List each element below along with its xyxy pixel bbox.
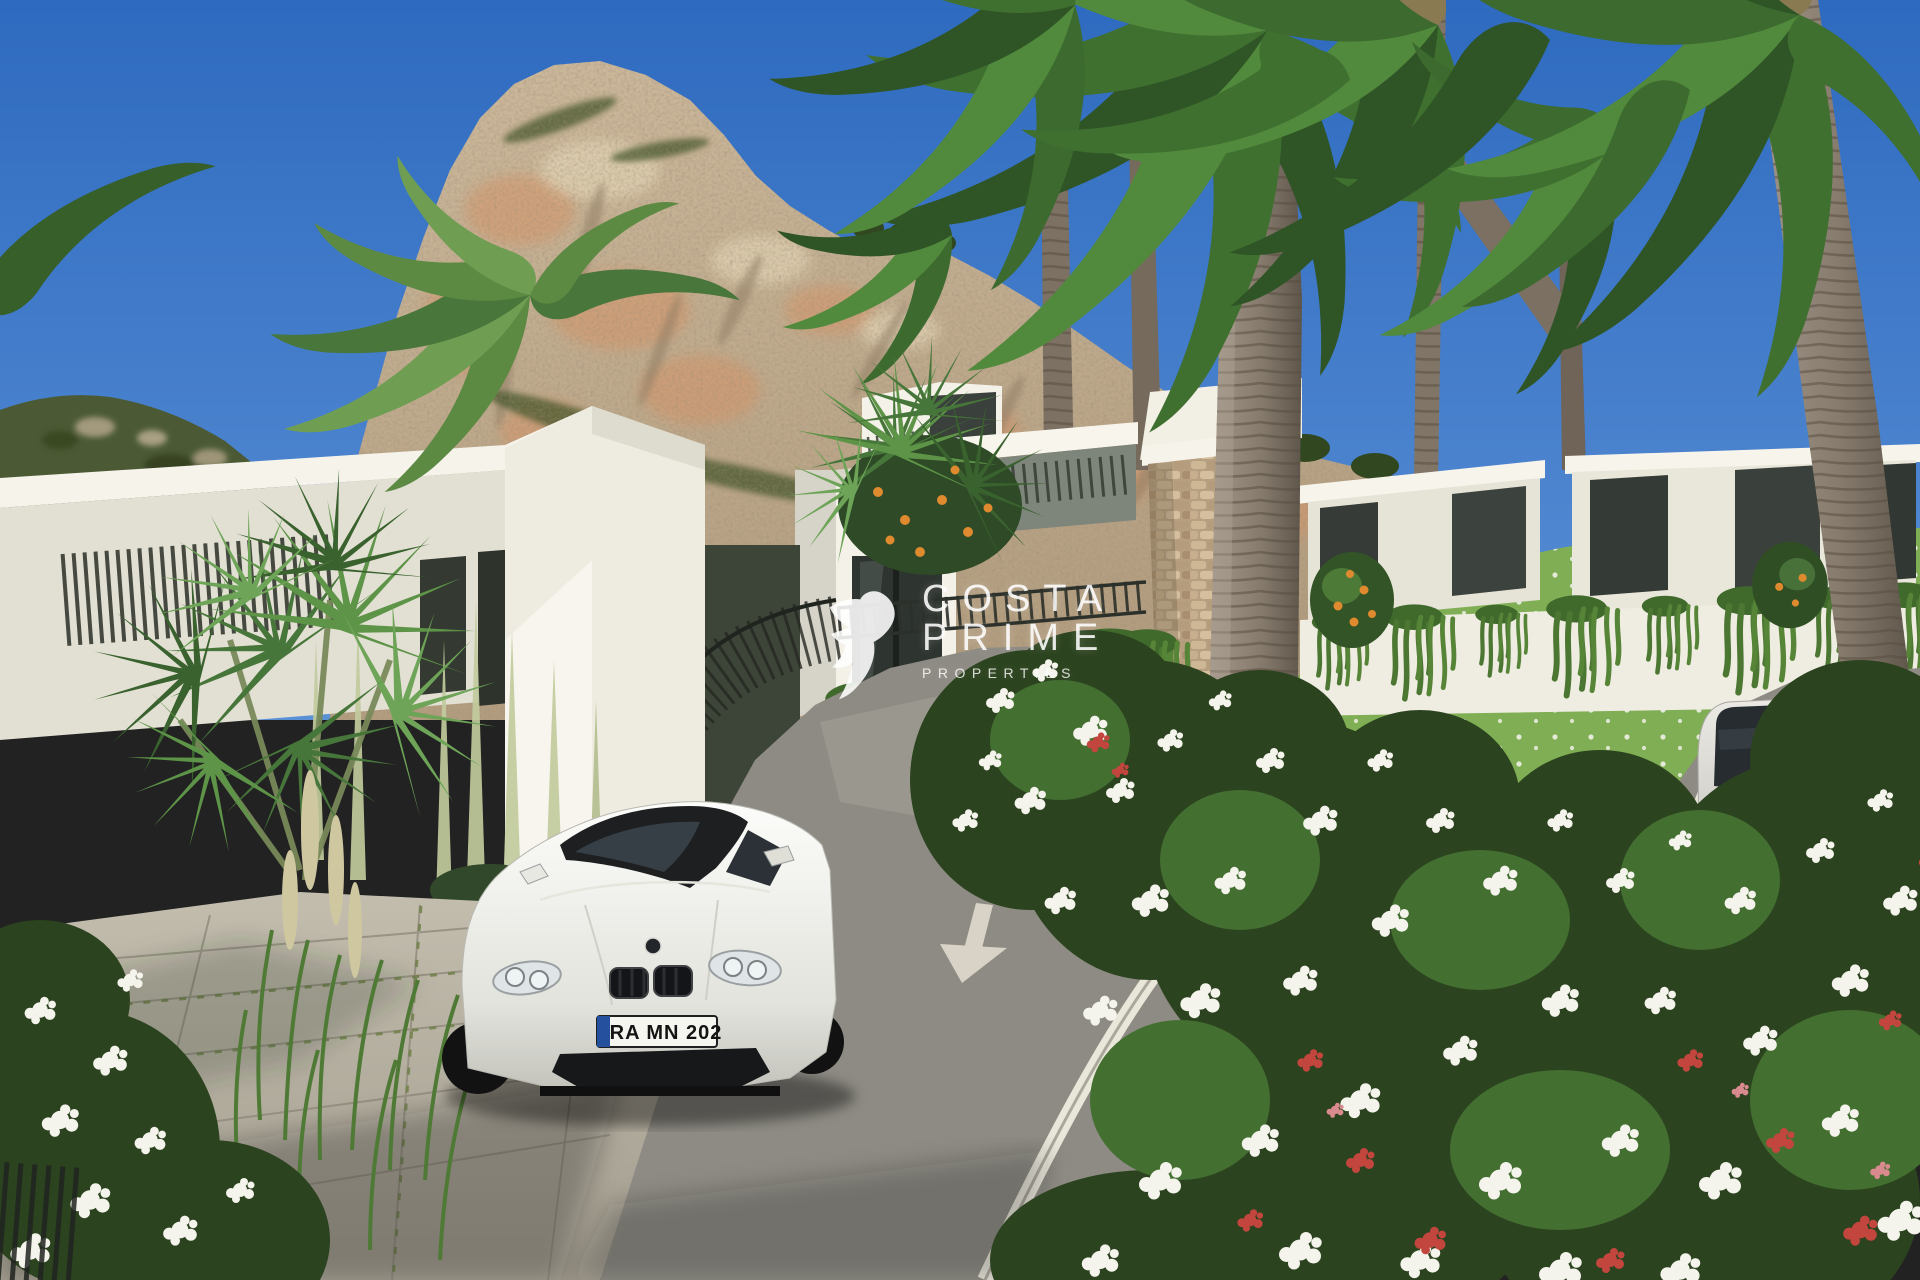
license-plate: RA MN 202 bbox=[597, 1016, 722, 1047]
bmw-roundel-icon bbox=[645, 938, 661, 954]
render-viewport: RA MN 202 COSTA PRIME PROPERTIES bbox=[0, 0, 1920, 1280]
villa-development-render: RA MN 202 bbox=[0, 0, 1920, 1280]
plate-number: RA MN 202 bbox=[610, 1022, 723, 1044]
white-bmw-coupe: RA MN 202 bbox=[442, 802, 855, 1126]
